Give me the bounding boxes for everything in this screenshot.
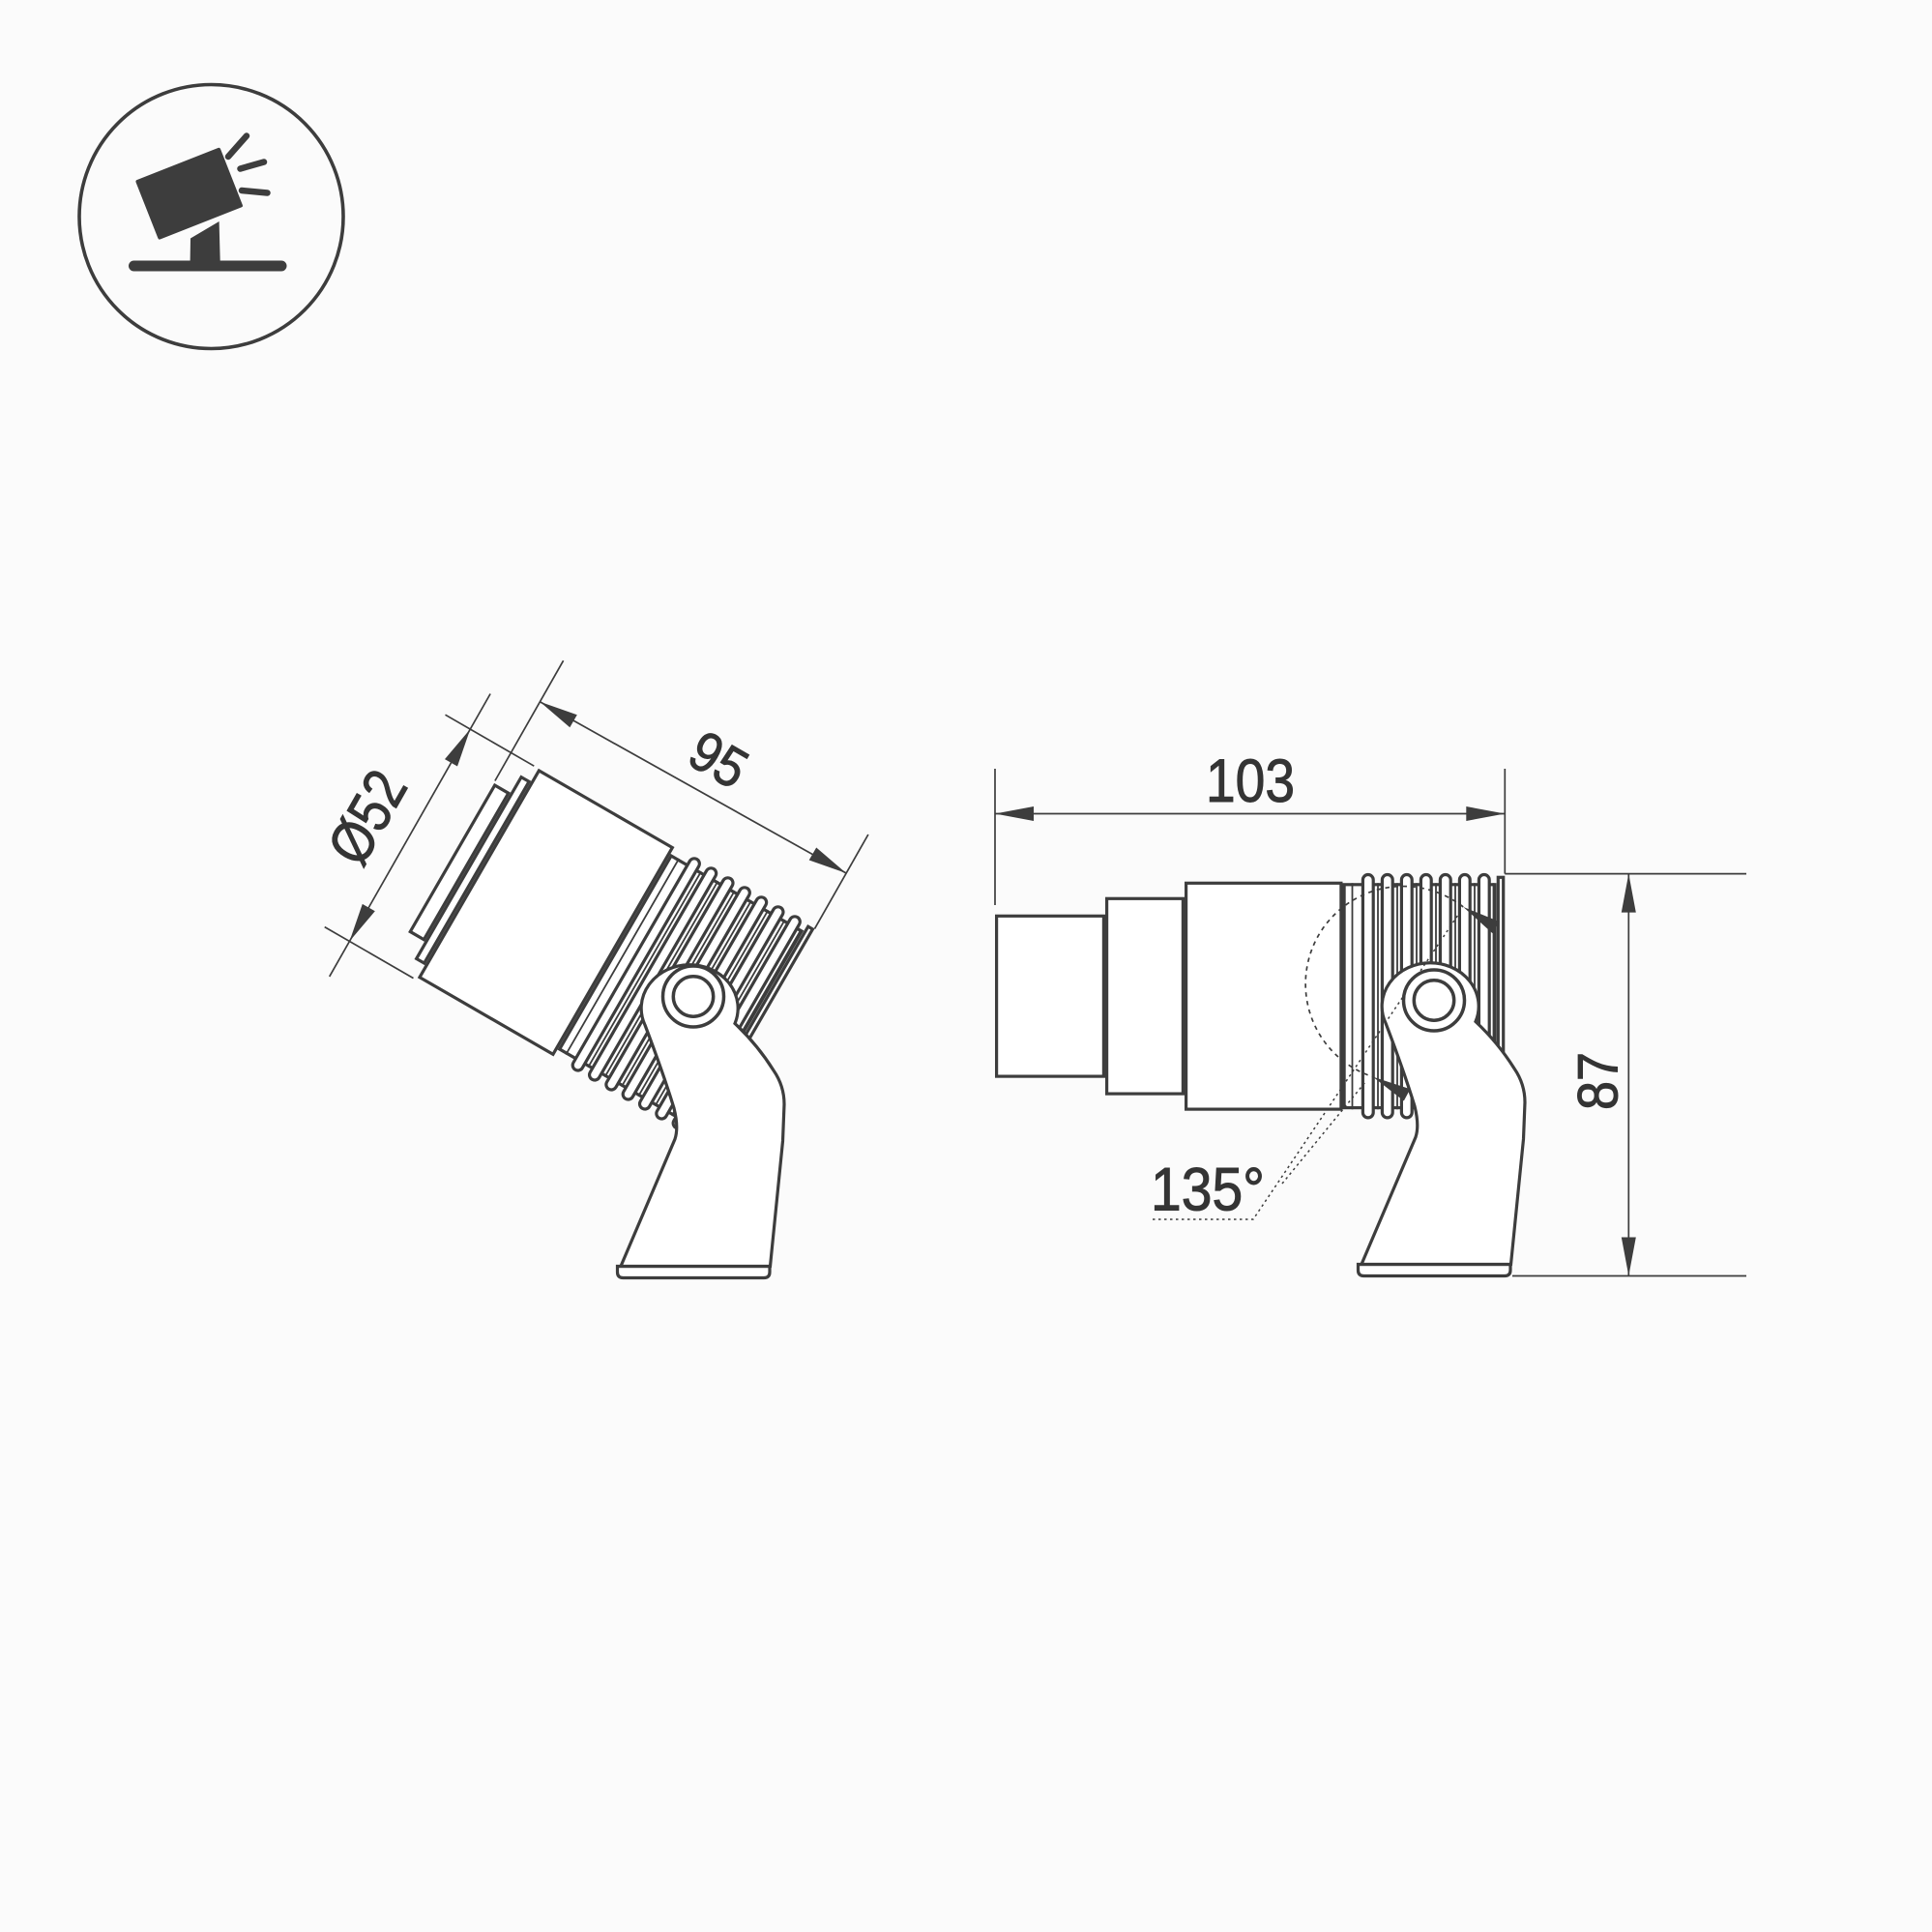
svg-text:87: 87: [1567, 1052, 1630, 1110]
svg-text:103: 103: [1206, 747, 1295, 815]
svg-text:135°: 135°: [1151, 1156, 1265, 1224]
